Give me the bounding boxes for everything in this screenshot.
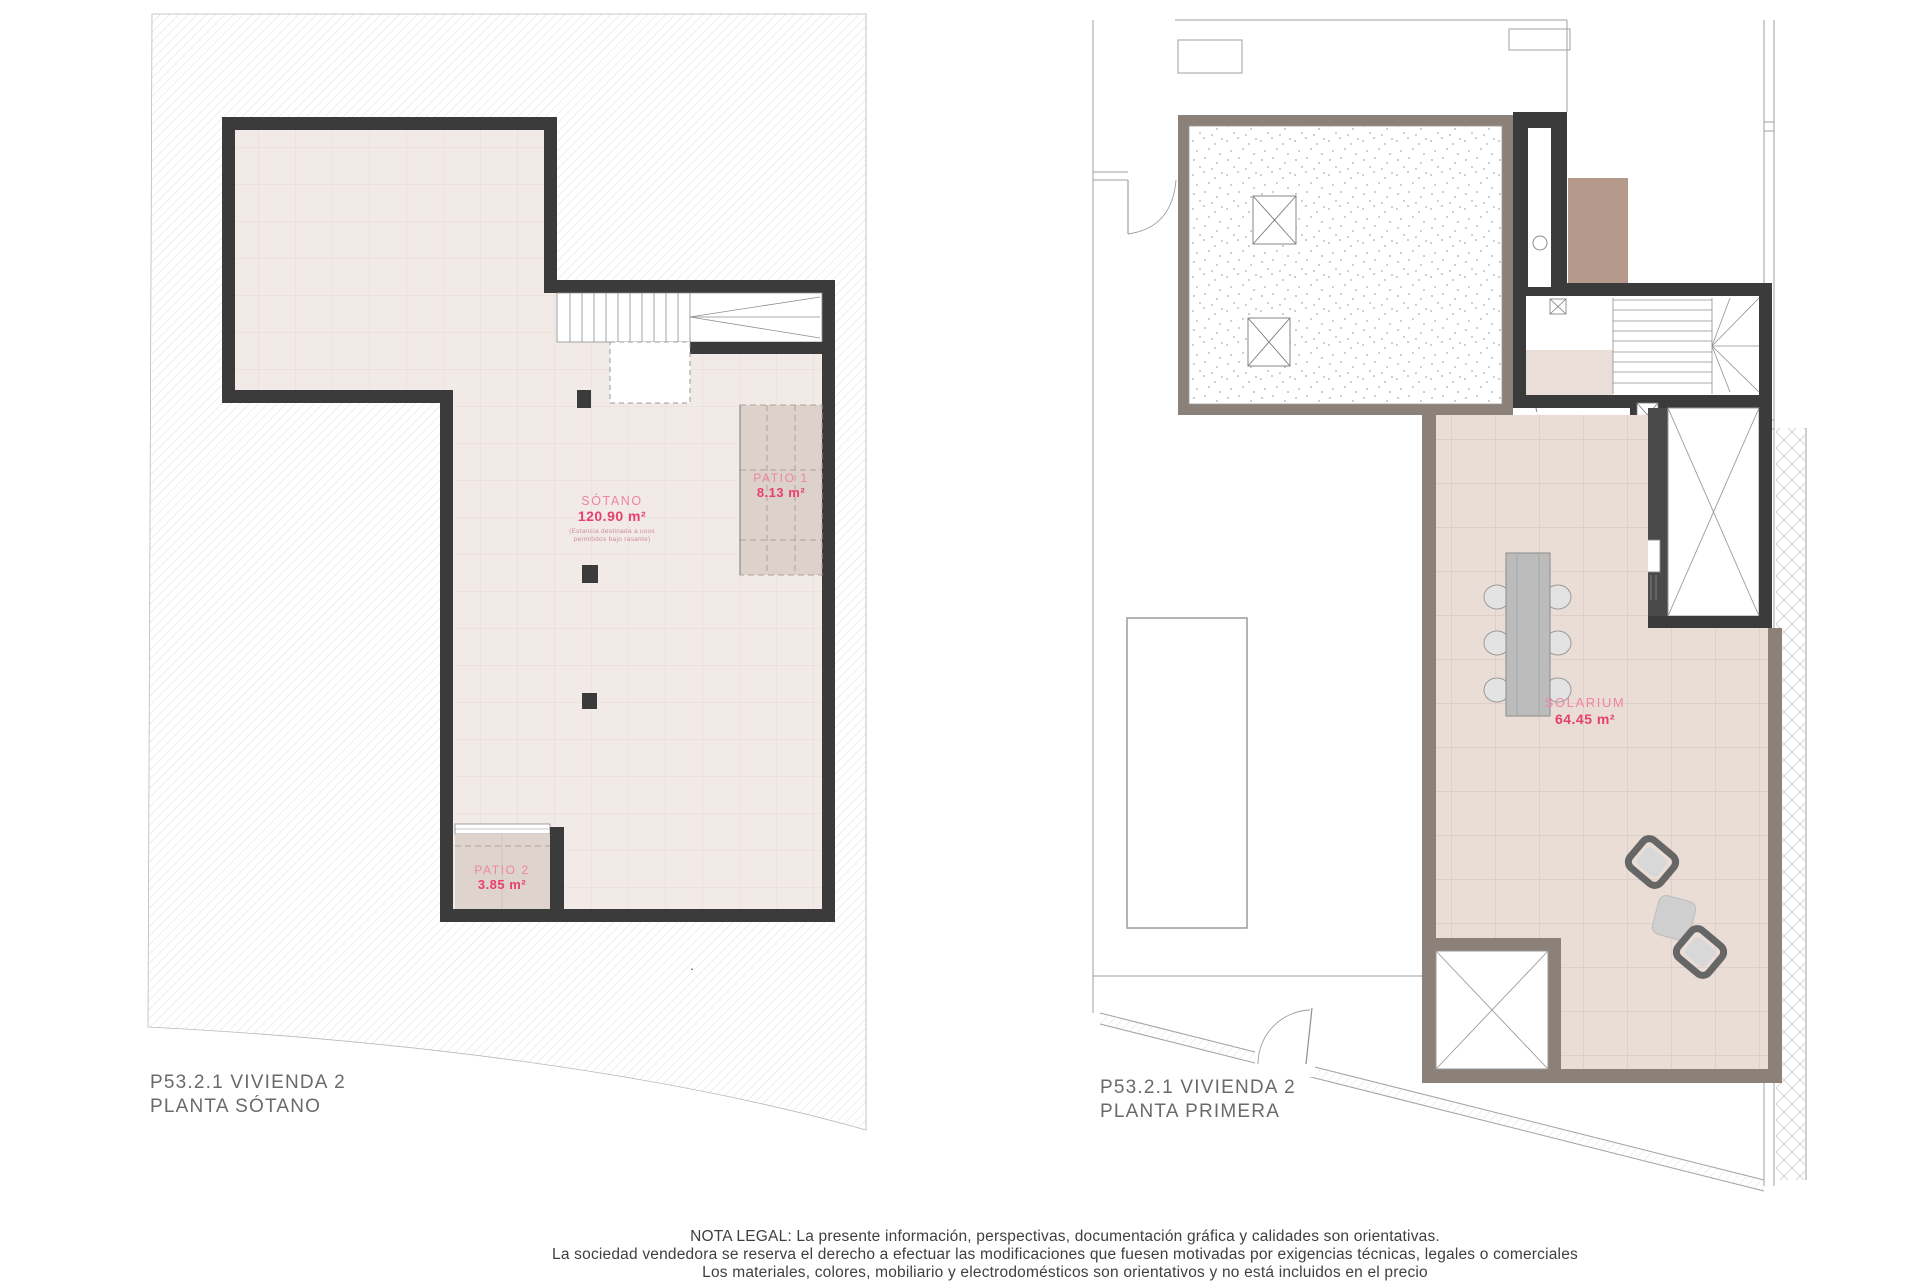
gate-door [1255,1008,1315,1077]
patio1-area: 8.13 m² [757,485,805,500]
entry-door [1093,172,1176,234]
floorplan-sheet: SÓTANO 120.90 m² (Estancia destinada a u… [0,0,1920,1280]
brown-block [1568,178,1628,285]
solarium-label: SOLARIUM [1545,695,1626,710]
left-plan-title-line2: PLANTA SÓTANO [150,1095,321,1117]
column [582,565,598,583]
left-plan: SÓTANO 120.90 m² (Estancia destinada a u… [148,14,866,1130]
sotano-note-1: (Estancia destinada a usos [569,528,655,535]
right-plan-title-line1: P53.2.1 VIVIENDA 2 [1100,1077,1296,1098]
sotano-label: SÓTANO [581,493,642,508]
solarium-skylight [1428,938,1561,1069]
patio2-area: 3.85 m² [478,877,526,892]
legal-line-1: NOTA LEGAL: La presente información, per… [340,1228,1790,1246]
patio1-label: PATIO 1 [753,471,808,485]
right-plan: SOLARIUM 64.45 m² P53.2.1 VIVIENDA 2 PLA… [1093,20,1806,1191]
pool-outline [1127,618,1247,928]
separator-dot: . [690,957,694,973]
gravel-courtyard [1178,115,1513,415]
legal-line-3: Los materiales, colores, mobiliario y el… [340,1264,1790,1282]
sotano-note-2: permitidos bajo rasante) [574,536,651,543]
sotano-area: 120.90 m² [578,508,646,524]
table [1506,553,1550,716]
left-plan-title-line1: P53.2.1 VIVIENDA 2 [150,1072,346,1093]
solarium-area: 64.45 m² [1555,711,1615,727]
patio2-pillar [550,827,564,909]
legal-line-2: La sociedad vendedora se reserva el dere… [340,1246,1790,1264]
right-plan-title-line2: PLANTA PRIMERA [1100,1101,1280,1122]
floorplan-drawing: SÓTANO 120.90 m² (Estancia destinada a u… [0,0,1920,1280]
column [582,693,597,709]
patio2-label: PATIO 2 [474,863,529,877]
lightwell [1641,408,1772,628]
legal-note: NOTA LEGAL: La presente información, per… [340,1228,1790,1282]
column [577,390,591,408]
